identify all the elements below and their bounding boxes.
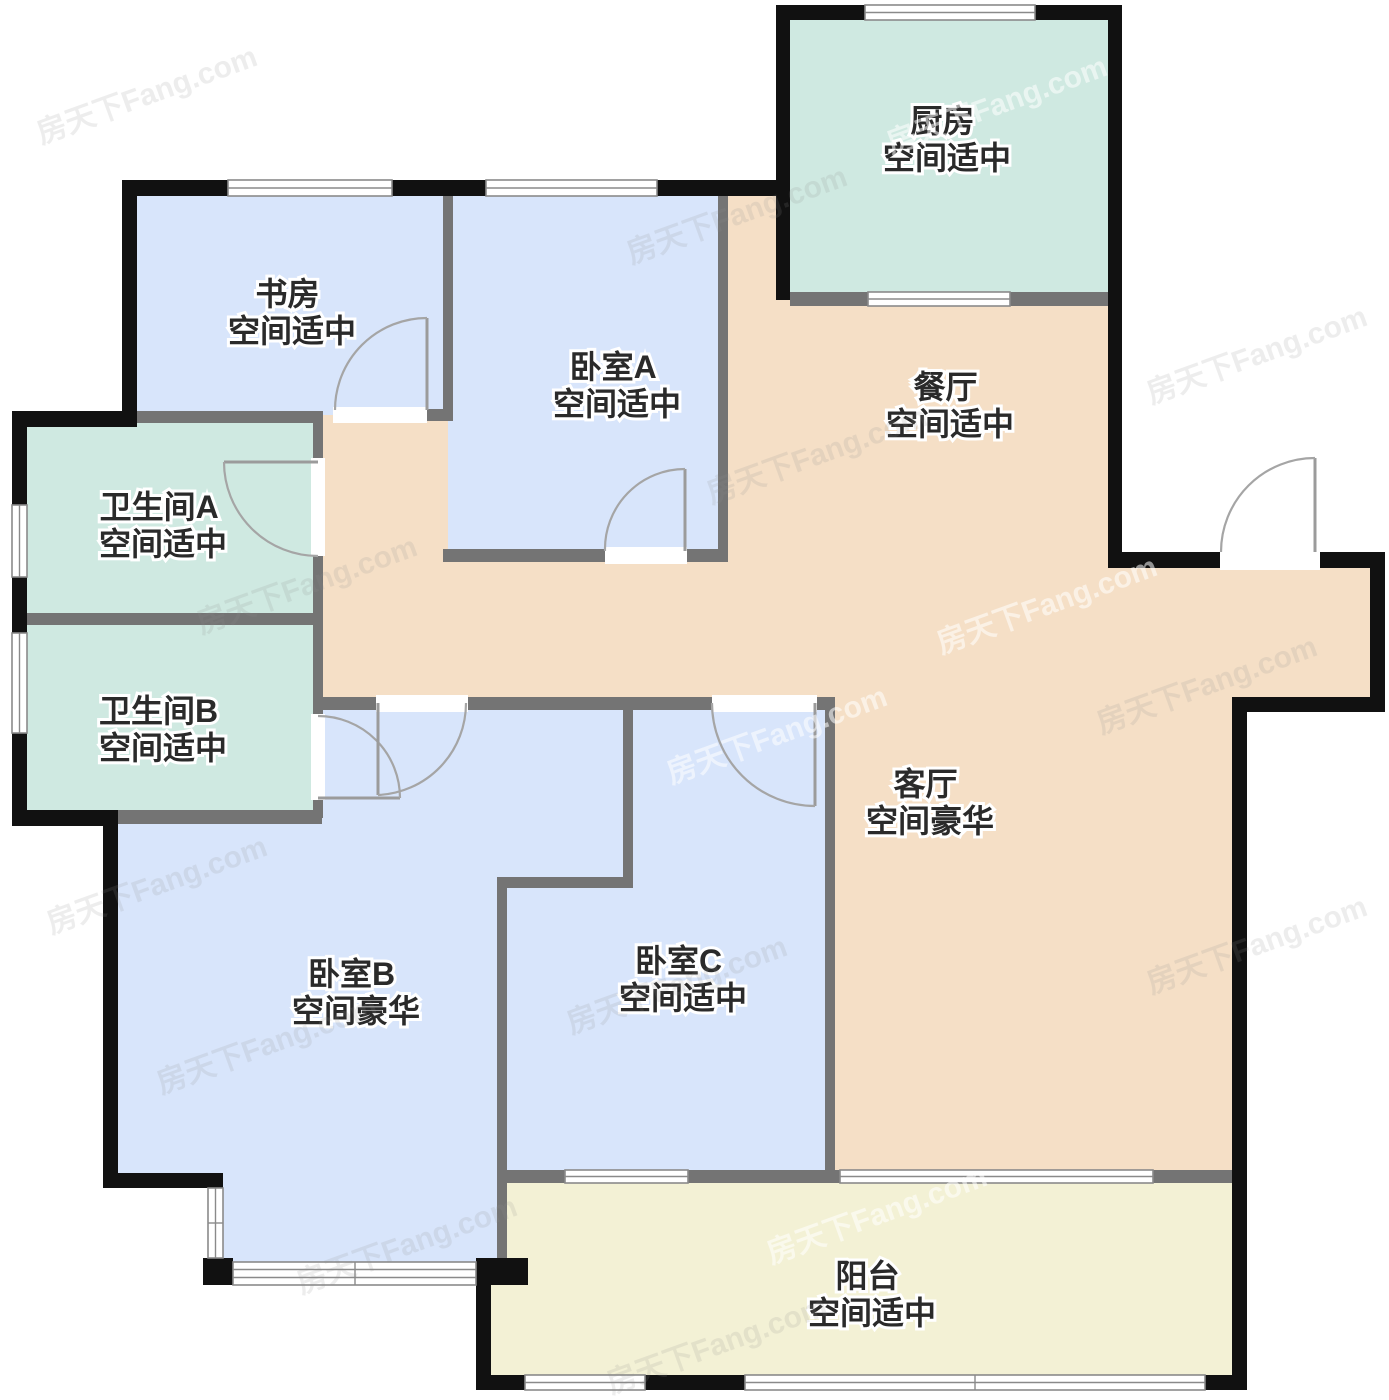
door-entry — [1220, 458, 1320, 570]
window-kitchen-dining — [868, 292, 1010, 306]
label-bath-b: 卫生间B 空间适中 — [99, 693, 227, 766]
floor-plan-page: 书房 空间适中 卧室A 空间适中 厨房 空间适中 餐厅 空间适中 卫生间A 空间… — [0, 0, 1389, 1400]
window-kitchen-top — [865, 5, 1035, 20]
window-bath-a-left — [12, 505, 27, 577]
window-bedroom-b-side — [208, 1188, 223, 1258]
label-bedroom-c: 卧室C 空间适中 — [619, 943, 747, 1016]
window-bedroom-c-balcony — [565, 1170, 688, 1183]
window-bath-b-left — [12, 633, 27, 733]
window-living-balcony — [840, 1170, 1153, 1183]
window-balcony-bottom-left — [525, 1375, 645, 1390]
floor-plan: 书房 空间适中 卧室A 空间适中 厨房 空间适中 餐厅 空间适中 卫生间A 空间… — [0, 0, 1389, 1400]
window-bedroom-b-bottom — [233, 1262, 476, 1285]
window-study-top — [228, 180, 392, 196]
label-bedroom-b: 卧室B 空间豪华 — [292, 956, 420, 1029]
label-bath-a: 卫生间A 空间适中 — [99, 489, 227, 562]
window-bedroom-a-top — [486, 180, 657, 196]
label-bedroom-a: 卧室A 空间适中 — [553, 349, 681, 422]
window-balcony-bottom-right — [745, 1375, 1205, 1390]
